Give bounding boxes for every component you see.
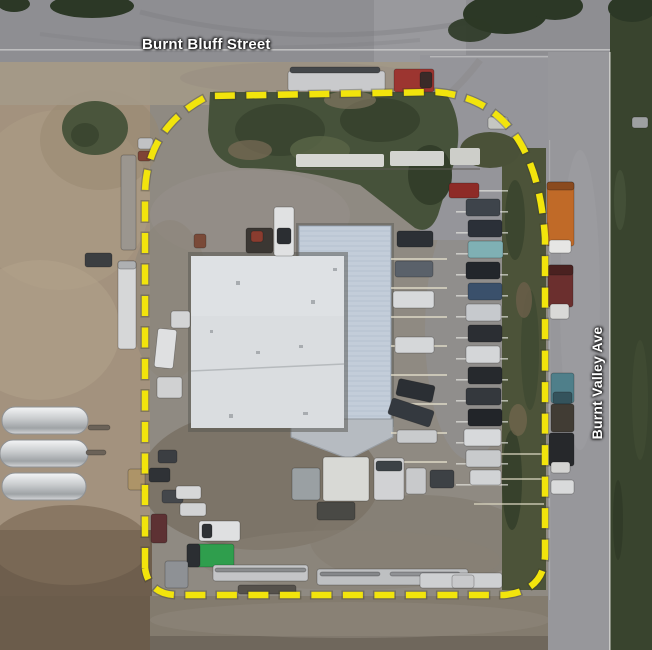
vehicle: [320, 572, 380, 576]
vehicle: [187, 544, 200, 567]
vehicle: [466, 388, 501, 405]
storage-tanks: [0, 407, 88, 500]
vehicle: [468, 409, 502, 426]
vehicle: [88, 425, 110, 430]
vehicle: [149, 468, 170, 482]
vehicle: [288, 71, 385, 91]
vehicle: [277, 228, 291, 244]
vehicle: [151, 514, 167, 543]
vehicle: [547, 182, 574, 246]
vehicle: [406, 468, 426, 494]
vehicle: [470, 470, 501, 485]
north-trailer: [296, 154, 384, 167]
vehicle: [171, 311, 190, 328]
vehicle: [464, 429, 501, 446]
vehicle: [452, 575, 474, 588]
vehicle: [154, 328, 177, 369]
vehicle: [290, 67, 380, 73]
vehicle: [393, 291, 434, 308]
storage-tank: [2, 473, 86, 500]
vehicle: [157, 377, 182, 398]
vehicle: [466, 199, 500, 216]
vehicle: [180, 503, 206, 516]
vehicle: [176, 486, 201, 499]
vehicle: [121, 155, 136, 250]
street-label-burnt-valley: Burnt Valley Ave: [589, 327, 605, 440]
vehicle: [395, 337, 434, 353]
vehicle: [194, 234, 206, 248]
vehicle: [118, 261, 136, 349]
vehicle: [202, 524, 212, 538]
storage-tank: [0, 440, 88, 467]
street-label-burnt-bluff: Burnt Bluff Street: [142, 36, 271, 53]
vehicle: [395, 261, 433, 277]
vehicle: [547, 182, 574, 190]
vehicle: [466, 304, 501, 321]
vehicle: [323, 457, 369, 501]
vehicle: [549, 433, 574, 466]
vehicle: [549, 240, 571, 253]
vehicle: [251, 231, 263, 242]
vehicle: [213, 565, 308, 581]
vehicle: [553, 392, 572, 404]
vehicle: [551, 462, 570, 473]
vehicle: [468, 325, 502, 342]
vehicle: [292, 468, 320, 500]
vehicle: [86, 450, 106, 455]
vehicle: [118, 261, 136, 269]
vehicle: [468, 241, 503, 258]
vehicle: [468, 283, 502, 300]
aerial-basemap: [0, 0, 652, 650]
vehicle: [466, 450, 501, 467]
vehicle: [420, 72, 432, 88]
vehicle: [449, 183, 479, 198]
vehicle: [215, 568, 306, 572]
vehicle: [632, 117, 648, 128]
vehicle: [158, 450, 177, 463]
vehicle: [397, 231, 433, 247]
north-trailer: [390, 151, 444, 166]
vehicle: [397, 430, 437, 443]
vehicle: [468, 220, 502, 237]
vehicle: [85, 253, 112, 267]
vehicle: [430, 470, 454, 488]
vehicle: [165, 561, 188, 588]
vehicle: [548, 265, 573, 275]
vehicle: [550, 304, 569, 319]
vehicle: [551, 404, 574, 432]
aerial-map: Burnt Bluff Street Burnt Valley Ave: [0, 0, 652, 650]
north-trailer: [450, 148, 480, 165]
vehicle: [466, 262, 500, 279]
vehicle: [468, 367, 502, 384]
vehicle: [551, 480, 574, 494]
vehicle: [376, 461, 402, 471]
vehicle: [317, 502, 355, 520]
storage-tank: [2, 407, 88, 434]
vehicle: [466, 346, 500, 363]
